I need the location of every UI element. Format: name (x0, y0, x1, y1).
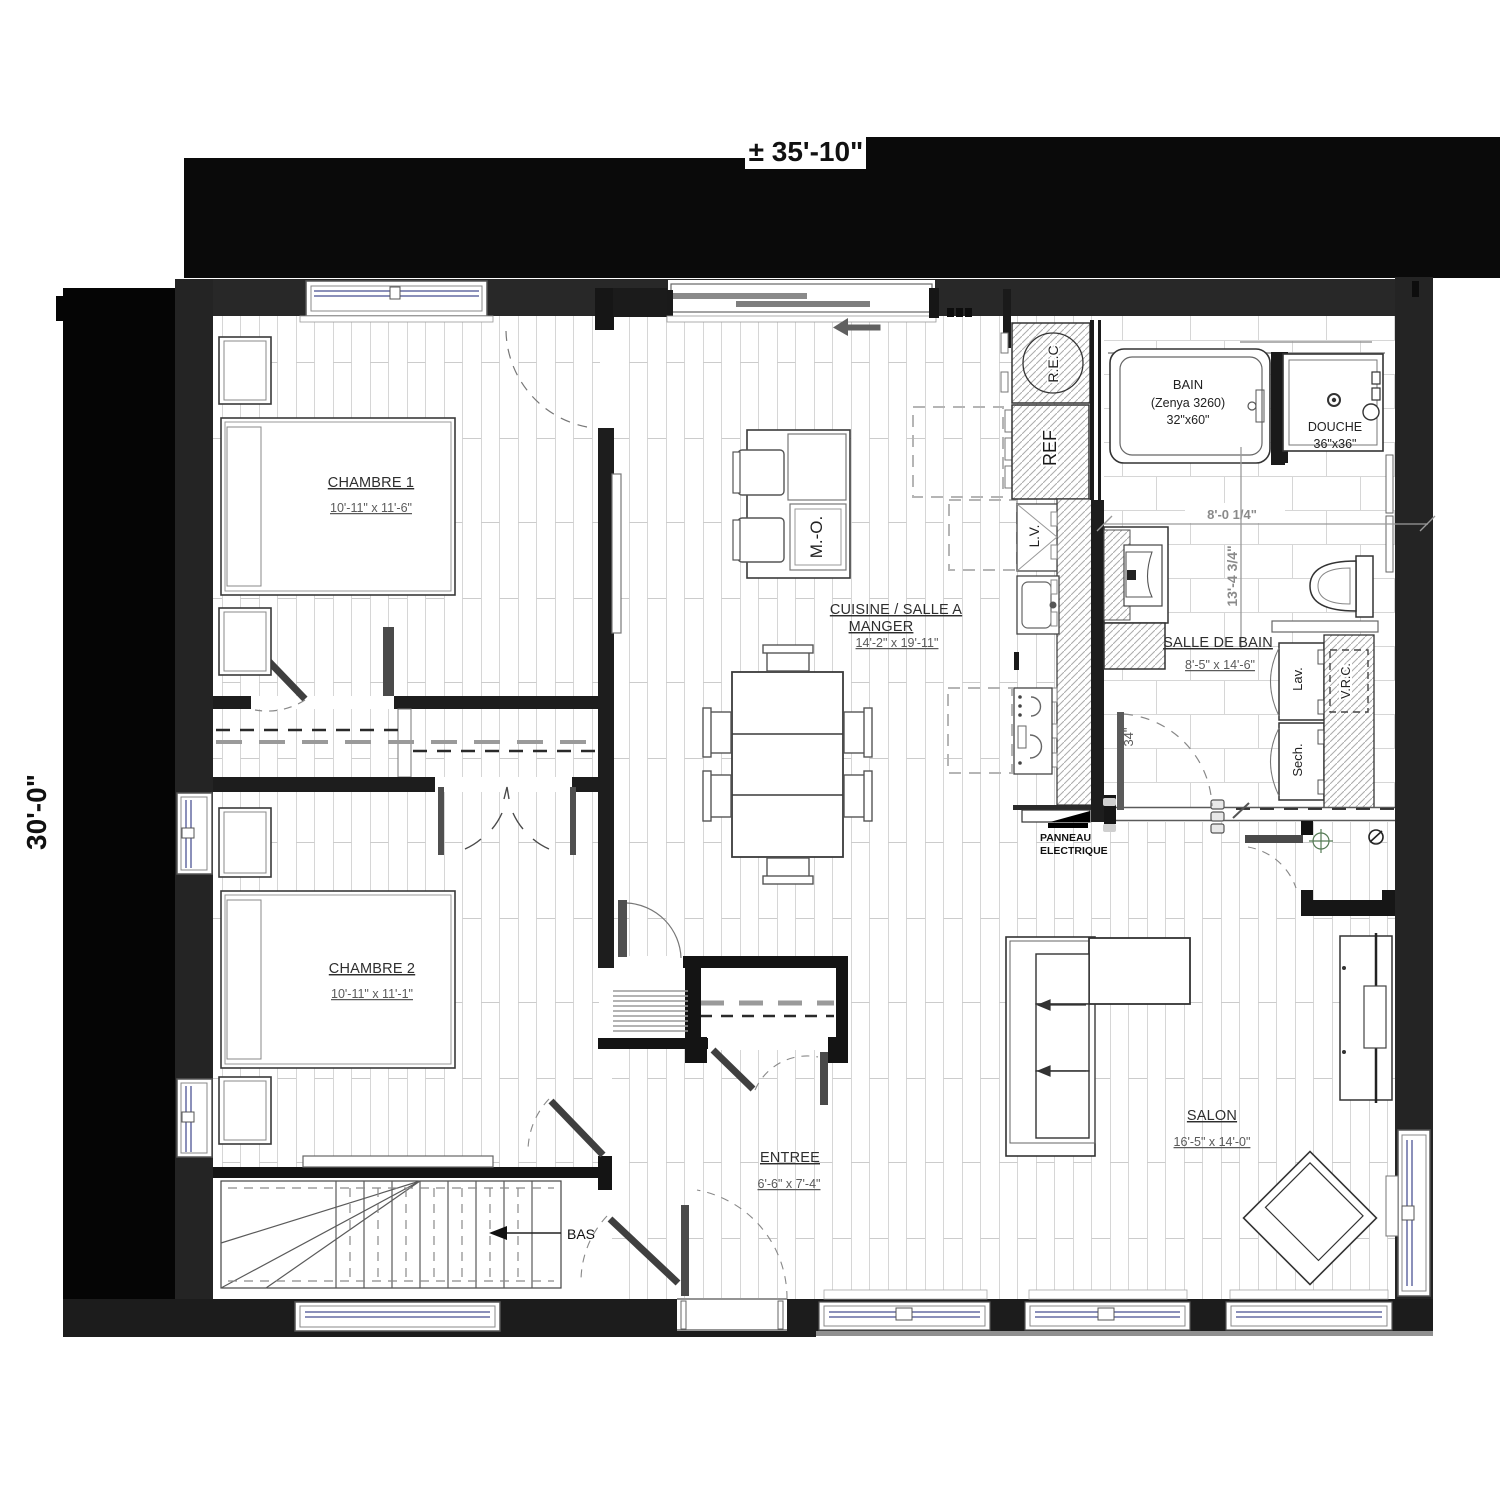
svg-text:10'-11" x 11'-1": 10'-11" x 11'-1" (331, 987, 413, 1001)
svg-text:CHAMBRE 2: CHAMBRE 2 (329, 961, 415, 977)
svg-text:(Zenya 3260): (Zenya 3260) (1151, 396, 1225, 410)
svg-text:DOUCHE: DOUCHE (1308, 420, 1362, 434)
svg-text:± 35'-10": ± 35'-10" (749, 136, 864, 167)
svg-text:BAS: BAS (567, 1226, 595, 1242)
svg-text:ENTREE: ENTREE (760, 1150, 820, 1166)
svg-text:R.E.C: R.E.C (1045, 345, 1061, 382)
svg-text:L.V.: L.V. (1027, 525, 1042, 548)
svg-text:SALON: SALON (1187, 1108, 1237, 1124)
svg-text:CUISINE / SALLE A: CUISINE / SALLE A (830, 602, 962, 618)
svg-text:SALLE DE BAIN: SALLE DE BAIN (1163, 635, 1273, 651)
svg-text:V.R.C.: V.R.C. (1339, 663, 1353, 699)
svg-text:REF: REF (1040, 430, 1060, 466)
svg-text:M.-O.: M.-O. (807, 516, 826, 559)
svg-text:ELECTRIQUE: ELECTRIQUE (1040, 845, 1108, 857)
svg-text:BAIN: BAIN (1173, 377, 1203, 392)
svg-text:34": 34" (1121, 727, 1136, 746)
svg-text:13'-4 3/4": 13'-4 3/4" (1224, 545, 1240, 606)
svg-text:PANNEAU: PANNEAU (1040, 832, 1091, 844)
svg-text:Lav.: Lav. (1290, 667, 1305, 691)
svg-text:32"x60": 32"x60" (1167, 413, 1210, 427)
svg-text:16'-5" x 14'-0": 16'-5" x 14'-0" (1174, 1135, 1251, 1149)
svg-text:36"x36": 36"x36" (1314, 437, 1357, 451)
svg-text:8'-0 1/4": 8'-0 1/4" (1207, 507, 1257, 522)
svg-text:8'-5" x 14'-6": 8'-5" x 14'-6" (1185, 658, 1255, 672)
svg-text:10'-11" x 11'-6": 10'-11" x 11'-6" (330, 501, 412, 515)
svg-text:6'-6" x 7'-4": 6'-6" x 7'-4" (758, 1177, 821, 1191)
svg-text:14'-2" x 19'-11": 14'-2" x 19'-11" (856, 636, 939, 650)
svg-text:Sech.: Sech. (1290, 743, 1305, 776)
svg-text:30'-0": 30'-0" (21, 774, 52, 850)
svg-text:MANGER: MANGER (849, 619, 914, 635)
svg-text:CHAMBRE 1: CHAMBRE 1 (328, 475, 414, 491)
